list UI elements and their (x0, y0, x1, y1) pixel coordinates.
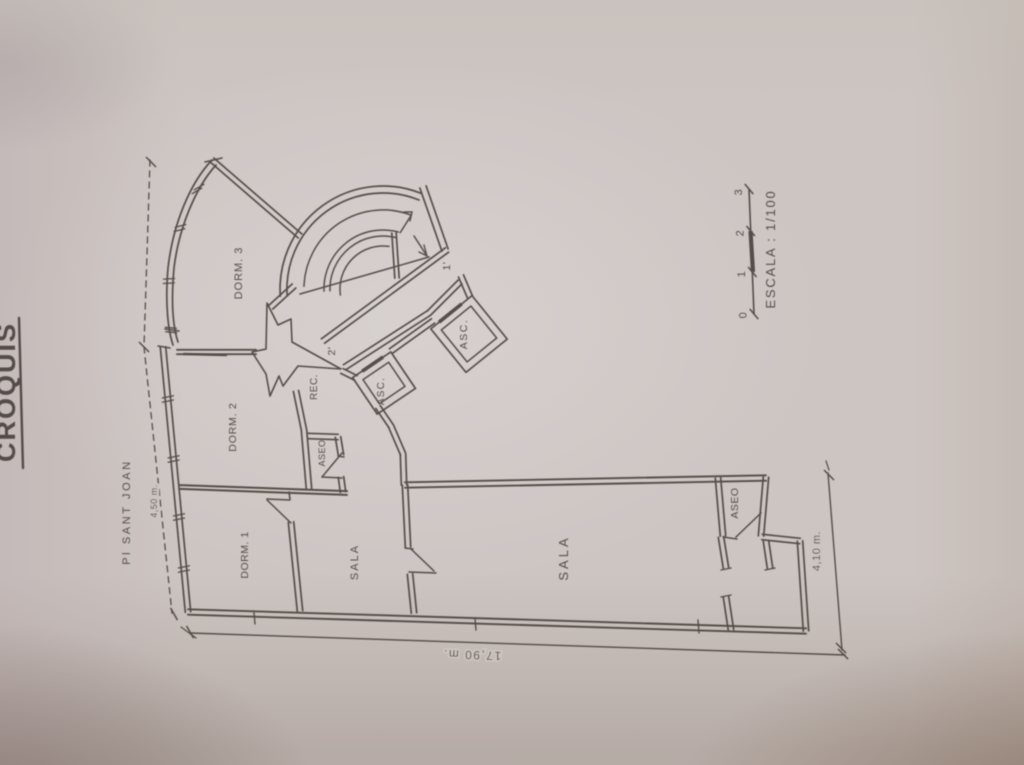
svg-text:2: 2 (735, 230, 747, 237)
svg-text:4,10 m.: 4,10 m. (811, 531, 823, 571)
svg-text:3: 3 (733, 189, 745, 196)
svg-text:ASC.: ASC. (458, 319, 470, 350)
svg-text:1: 1 (736, 271, 748, 278)
svg-text:ASEO: ASEO (729, 487, 741, 518)
svg-text:DORM. 1: DORM. 1 (239, 531, 251, 578)
svg-text:DORM. 2: DORM. 2 (227, 402, 239, 451)
svg-text:ASEO: ASEO (317, 439, 327, 466)
svg-text:Pl SANT JOAN: Pl SANT JOAN (121, 459, 133, 565)
svg-text:CROQUIS: CROQUIS (0, 322, 21, 462)
svg-text:ASC.: ASC. (376, 377, 387, 405)
svg-text:ESCALA : 1/100: ESCALA : 1/100 (763, 189, 778, 308)
svg-text:SALA: SALA (349, 544, 361, 580)
svg-text:17,90 m.: 17,90 m. (442, 647, 501, 663)
svg-text:SALA: SALA (556, 535, 571, 580)
svg-text:0: 0 (738, 312, 750, 319)
svg-text:4,50 m.: 4,50 m. (149, 484, 159, 518)
svg-text:2': 2' (326, 347, 338, 356)
svg-text:1': 1' (441, 262, 453, 271)
svg-text:REC.: REC. (309, 374, 320, 400)
svg-text:DORM. 3: DORM. 3 (233, 247, 245, 300)
